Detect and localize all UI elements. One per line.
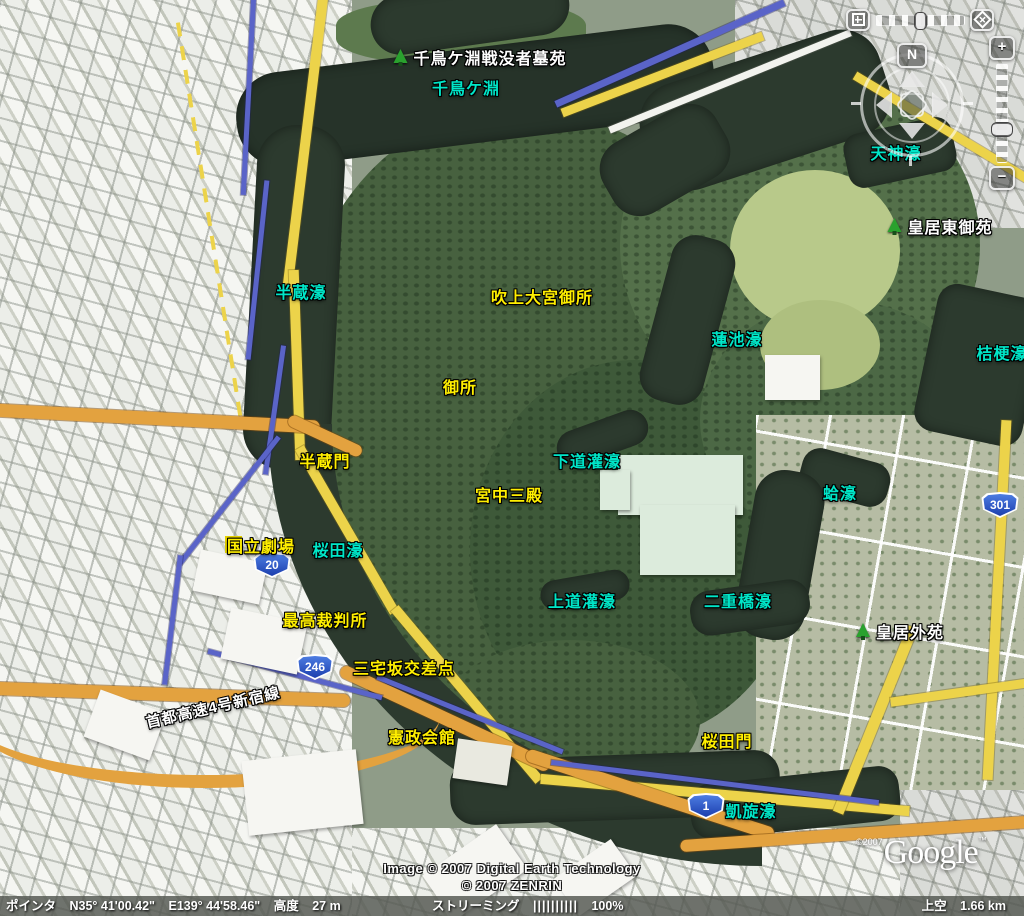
streaming-readout: ストリーミング |||||||||| 100% [432, 896, 633, 916]
map-label-east-garden: 皇居東御苑 [887, 214, 992, 238]
tilt-ground-button[interactable] [970, 9, 994, 31]
map-label-kikyobori: 桔梗濠 [976, 340, 1024, 364]
elevation-value: 27 m [312, 899, 341, 913]
map-label-hanzobori: 半蔵濠 [275, 279, 326, 303]
status-bar: ポインタ N35° 41'00.42" E139° 44'58.46" 高度 2… [0, 896, 1024, 916]
zoom-in-button[interactable]: + [989, 36, 1015, 60]
tilt-slider[interactable] [846, 9, 994, 31]
map-label-hamaguribori: 蛤濠 [823, 480, 857, 504]
pointer-longitude: E139° 44'58.46" [168, 899, 260, 913]
flat-view-icon [852, 13, 865, 26]
zoom-thumb[interactable] [991, 122, 1013, 137]
map-label-nijubashibori: 二重橋濠 [704, 588, 772, 612]
pointer-latitude: N35° 41'00.42" [70, 899, 156, 913]
tree-icon [856, 623, 871, 640]
tree-icon [393, 49, 408, 66]
elevation-label: 高度 [274, 899, 299, 913]
tilt-flat-button[interactable] [846, 9, 870, 31]
compass-center-knob[interactable] [896, 89, 928, 121]
imperial-palace-wing [640, 505, 735, 575]
google-logo: ©2007Google™ [856, 834, 987, 872]
knob-square-rotated [895, 88, 929, 122]
pointer-label: ポインタ [6, 899, 56, 913]
compass-tick-east [963, 102, 973, 105]
compass-tick-south [909, 156, 912, 166]
copyright-line-2: © 2007 ZENRIN [0, 877, 1024, 894]
map-label-supreme-court: 最高裁判所 [282, 607, 367, 631]
kensei-kaikan-building [452, 738, 512, 785]
compass-tick-west [851, 102, 861, 105]
streaming-label: ストリーミング [432, 899, 520, 913]
map-label-kyuchu-sanden: 宮中三殿 [475, 482, 543, 506]
streaming-percent: 100% [591, 899, 623, 913]
large-building-sw [241, 749, 363, 836]
streaming-progress-bars: |||||||||| [533, 899, 578, 913]
tilt-track[interactable] [875, 15, 965, 26]
altitude-label: 上空 [922, 899, 947, 913]
zoom-out-button[interactable]: − [989, 166, 1015, 190]
altitude-readout: 上空 1.66 km [922, 896, 1016, 916]
map-label-kensei-kaikan: 憲政会館 [388, 724, 456, 748]
east-garden-building [765, 355, 820, 400]
map-label-shimodokanbori: 下道灌濠 [553, 448, 621, 472]
map-label-kamidokanbori: 上道灌濠 [548, 588, 616, 612]
map-label-gaisenbori: 凱旋濠 [725, 798, 776, 822]
google-earth-window: 千鳥ケ淵戦没者墓苑 千鳥ケ淵 天神濠 皇居東御苑 半蔵濠 吹上大宮御所 蓮池濠 … [0, 0, 1024, 916]
map-label-fukiage-omiya-palace: 吹上大宮御所 [491, 284, 593, 308]
map-label-gosho: 御所 [443, 374, 477, 398]
tilt-thumb[interactable] [914, 12, 927, 30]
logo-trademark: ™ [978, 835, 987, 845]
map-label-hanzomon: 半蔵門 [299, 448, 350, 472]
map-label-chidorigafuchi-cemetery: 千鳥ケ淵戦没者墓苑 [393, 45, 566, 69]
tree-icon [887, 218, 902, 235]
map-label-sakuradabori: 桜田濠 [312, 537, 363, 561]
pointer-readout: ポインタ N35° 41'00.42" E139° 44'58.46" 高度 2… [6, 896, 351, 916]
map-label-kokyo-gaien: 皇居外苑 [856, 619, 944, 643]
zoom-track[interactable] [996, 63, 1008, 163]
map-label-national-theatre: 国立劇場 [227, 533, 295, 557]
map-label-hasuikebori: 蓮池濠 [711, 326, 762, 350]
logo-wordmark: Google [884, 834, 978, 871]
logo-copyright-year: ©2007 [856, 837, 883, 847]
map-label-miyakezaka-crossing: 三宅坂交差点 [353, 655, 455, 679]
altitude-value: 1.66 km [960, 899, 1006, 913]
compass-north-button[interactable]: N [897, 43, 927, 68]
map-label-sakuradamon: 桜田門 [701, 728, 752, 752]
zoom-slider[interactable]: + − [988, 36, 1016, 190]
imperial-palace-annex [600, 470, 630, 510]
map-label-chidorigafuchi: 千鳥ケ淵 [432, 75, 500, 99]
tilted-view-icon [973, 10, 991, 28]
compass-control[interactable]: N [852, 45, 972, 165]
